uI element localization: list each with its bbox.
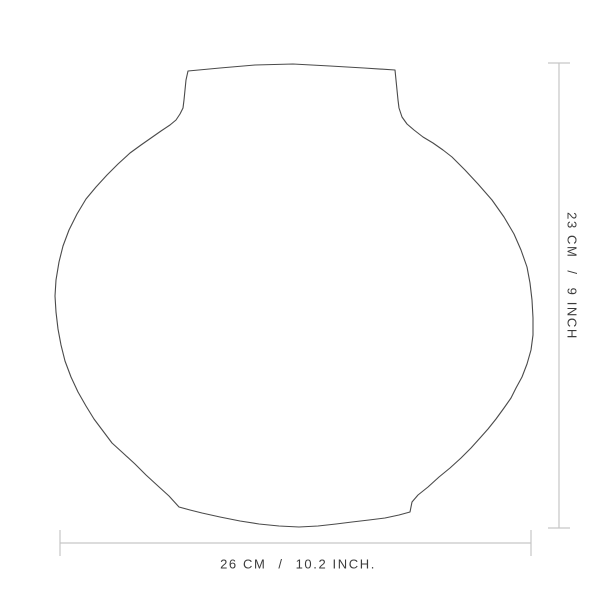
height-imperial-value: 9 INCH <box>565 288 580 340</box>
width-metric-value: 26 CM <box>220 557 266 572</box>
height-dimension-label: 23 CM/9 INCH <box>566 212 579 340</box>
width-dimension-label: 26 CM/10.2 INCH. <box>220 558 376 571</box>
vase-outline <box>55 64 533 527</box>
width-imperial-value: 10.2 INCH. <box>296 557 376 572</box>
width-separator: / <box>278 557 283 572</box>
height-metric-value: 23 CM <box>565 212 580 258</box>
diagram-canvas <box>0 0 600 600</box>
height-separator: / <box>565 270 580 275</box>
vase-dimension-diagram: 26 CM/10.2 INCH. 23 CM/9 INCH <box>0 0 600 600</box>
